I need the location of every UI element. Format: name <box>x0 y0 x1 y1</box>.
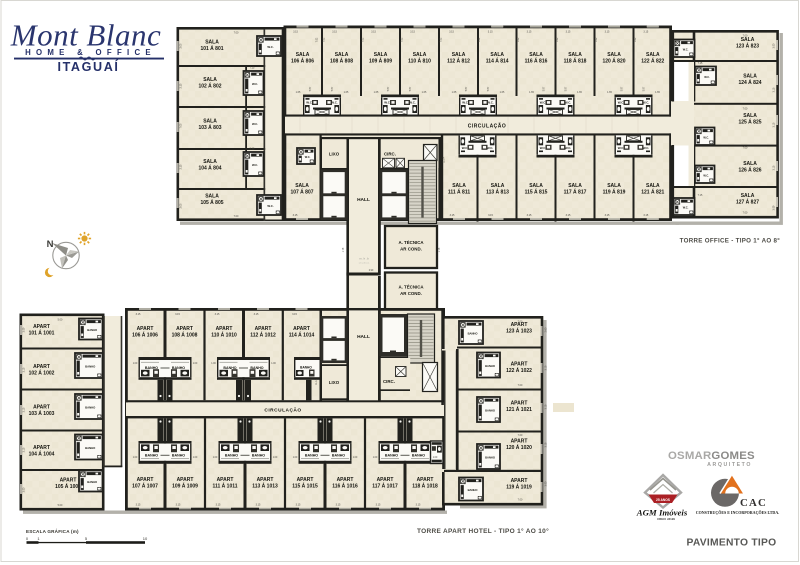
svg-text:5.87: 5.87 <box>566 86 568 91</box>
svg-text:1.65: 1.65 <box>607 91 612 94</box>
svg-text:1.65: 1.65 <box>374 91 379 94</box>
svg-text:CRECI J3129: CRECI J3129 <box>657 517 675 521</box>
svg-text:TORRE OFFICE - TIPO 1° AO 8°: TORRE OFFICE - TIPO 1° AO 8° <box>680 238 781 245</box>
svg-text:CIRC.: CIRC. <box>384 152 396 157</box>
svg-text:AR COND.: AR COND. <box>400 246 422 251</box>
svg-text:3.15: 3.15 <box>773 165 776 170</box>
svg-text:7.00: 7.00 <box>234 215 239 218</box>
svg-text:BANHO: BANHO <box>305 453 318 457</box>
svg-text:3.15: 3.15 <box>488 214 493 217</box>
svg-text:1.00: 1.00 <box>293 457 298 459</box>
svg-text:W.C.: W.C. <box>565 146 572 150</box>
svg-text:3.15: 3.15 <box>566 30 571 33</box>
svg-text:118 Á 818: 118 Á 818 <box>564 57 587 64</box>
svg-text:3.15: 3.15 <box>773 87 776 92</box>
svg-text:3.15: 3.15 <box>605 214 610 217</box>
svg-text:W.C.: W.C. <box>305 155 311 159</box>
svg-text:BANHO: BANHO <box>85 365 96 369</box>
svg-text:CIRCULAÇÃO: CIRCULAÇÃO <box>264 407 301 414</box>
svg-text:5.87: 5.87 <box>544 86 546 91</box>
svg-text:7.15: 7.15 <box>698 62 703 65</box>
svg-text:SALA: SALA <box>741 37 755 43</box>
svg-text:SALA: SALA <box>646 183 660 189</box>
svg-text:1.65: 1.65 <box>655 91 660 94</box>
svg-text:102 Á 802: 102 Á 802 <box>198 82 221 89</box>
svg-text:3.15: 3.15 <box>545 442 548 447</box>
svg-text:3.15: 3.15 <box>293 214 298 217</box>
svg-text:120 Á 1020: 120 Á 1020 <box>506 444 532 451</box>
svg-text:SALA: SALA <box>741 193 755 199</box>
svg-text:113 Á 1013: 113 Á 1013 <box>252 482 278 489</box>
svg-text:3.15: 3.15 <box>773 122 776 127</box>
svg-text:104 Á 804: 104 Á 804 <box>198 164 221 171</box>
svg-text:ITAGUAÍ: ITAGUAÍ <box>57 59 119 74</box>
svg-text:SALA: SALA <box>607 52 621 58</box>
svg-text:BANHO: BANHO <box>145 453 158 457</box>
svg-text:5.87: 5.87 <box>388 86 390 91</box>
svg-text:109 Á 809: 109 Á 809 <box>369 57 392 64</box>
svg-text:1.00: 1.00 <box>271 363 276 365</box>
svg-text:107 Á 1007: 107 Á 1007 <box>132 482 158 489</box>
svg-text:SALA: SALA <box>203 159 217 165</box>
svg-text:SALA: SALA <box>295 183 309 189</box>
svg-text:W.C.: W.C. <box>252 163 258 167</box>
svg-text:110 Á 810: 110 Á 810 <box>408 57 431 64</box>
svg-text:SALA: SALA <box>568 183 582 189</box>
svg-text:APART: APART <box>377 477 394 483</box>
svg-text:APART: APART <box>217 477 234 483</box>
svg-text:7.00: 7.00 <box>518 499 523 502</box>
svg-text:3.00: 3.00 <box>23 487 26 492</box>
svg-text:110 Á 1010: 110 Á 1010 <box>211 331 237 338</box>
svg-text:7.02: 7.02 <box>323 37 326 42</box>
svg-text:W.C.: W.C. <box>384 100 391 104</box>
svg-text:SALA: SALA <box>296 52 310 58</box>
svg-text:SALA: SALA <box>568 52 582 58</box>
svg-text:3.15: 3.15 <box>332 30 337 33</box>
svg-text:5.35: 5.35 <box>250 148 255 151</box>
svg-text:W.C.: W.C. <box>487 146 494 150</box>
svg-text:1.00: 1.00 <box>133 457 138 459</box>
svg-text:CIRC.: CIRC. <box>383 379 395 384</box>
svg-text:APART: APART <box>33 405 50 411</box>
svg-text:W.C.: W.C. <box>683 206 689 210</box>
svg-text:CONSTRUÇÕES E INCORPORAÇÕES LT: CONSTRUÇÕES E INCORPORAÇÕES LTDA. <box>696 510 779 515</box>
svg-text:1.65: 1.65 <box>500 91 505 94</box>
svg-text:APART: APART <box>511 478 528 484</box>
svg-text:7.00: 7.00 <box>743 147 748 150</box>
svg-text:116 Á 1016: 116 Á 1016 <box>332 482 358 489</box>
svg-text:APART: APART <box>137 326 154 332</box>
svg-text:119 Á 1019: 119 Á 1019 <box>506 483 532 490</box>
svg-text:3.09: 3.09 <box>23 327 26 332</box>
svg-text:APART: APART <box>216 326 233 332</box>
svg-text:5.87: 5.87 <box>488 86 490 91</box>
svg-text:BANHO: BANHO <box>385 453 398 457</box>
svg-text:s t u d i o s: s t u d i o s <box>359 262 370 265</box>
svg-text:107 Á 807: 107 Á 807 <box>290 188 313 195</box>
svg-text:124 Á 824: 124 Á 824 <box>738 79 761 86</box>
svg-text:3.15: 3.15 <box>256 504 261 507</box>
svg-text:25 ANOS: 25 ANOS <box>656 498 671 502</box>
svg-text:BANHO: BANHO <box>87 480 97 484</box>
svg-text:1.65: 1.65 <box>296 91 301 94</box>
svg-text:5.87: 5.87 <box>410 86 412 91</box>
svg-text:118 Á 1018: 118 Á 1018 <box>412 482 438 489</box>
svg-text:3.15: 3.15 <box>643 30 648 33</box>
svg-text:5.87: 5.87 <box>332 86 334 91</box>
svg-text:W.C.: W.C. <box>306 100 313 104</box>
svg-text:APART: APART <box>255 326 272 332</box>
svg-text:3.15: 3.15 <box>23 367 26 372</box>
svg-text:W.C.: W.C. <box>618 100 625 104</box>
svg-text:SALA: SALA <box>203 77 217 83</box>
svg-text:APART: APART <box>257 477 274 483</box>
svg-text:1.65: 1.65 <box>452 91 457 94</box>
svg-text:101 Á 801: 101 Á 801 <box>200 45 223 52</box>
svg-text:1.65: 1.65 <box>529 91 534 94</box>
svg-text:APART: APART <box>337 477 354 483</box>
svg-text:7.00: 7.00 <box>743 108 748 111</box>
svg-text:104 Á 1004: 104 Á 1004 <box>29 450 55 457</box>
svg-text:BANHO: BANHO <box>300 366 312 370</box>
svg-text:121 Á 821: 121 Á 821 <box>641 188 664 195</box>
svg-text:7.02: 7.02 <box>634 37 637 42</box>
svg-text:APART: APART <box>511 401 528 407</box>
svg-text:BANHO: BANHO <box>485 364 495 368</box>
svg-text:W.C.: W.C. <box>540 146 547 150</box>
svg-text:7.02: 7.02 <box>478 37 481 42</box>
svg-text:117 Á 817: 117 Á 817 <box>564 188 587 195</box>
svg-text:7.02: 7.02 <box>362 37 365 42</box>
svg-text:112 Á 1012: 112 Á 1012 <box>250 331 276 338</box>
svg-text:122 Á 1022: 122 Á 1022 <box>506 367 532 374</box>
svg-text:SALA: SALA <box>374 52 388 58</box>
svg-text:SALA: SALA <box>529 52 543 58</box>
svg-text:7.00: 7.00 <box>743 35 748 38</box>
svg-text:W.C.: W.C. <box>683 48 689 52</box>
svg-text:APART: APART <box>33 445 50 451</box>
svg-text:119 Á 819: 119 Á 819 <box>603 188 626 195</box>
svg-text:1.00: 1.00 <box>273 457 278 459</box>
svg-text:1.78: 1.78 <box>439 247 441 252</box>
svg-text:BANHO: BANHO <box>468 332 478 336</box>
svg-text:BANHO: BANHO <box>225 453 238 457</box>
svg-text:3.15: 3.15 <box>136 313 141 316</box>
svg-text:APART: APART <box>137 477 154 483</box>
svg-text:SALA: SALA <box>743 74 757 80</box>
svg-text:PAVIMENTO TIPO: PAVIMENTO TIPO <box>687 537 777 548</box>
svg-text:7.02: 7.02 <box>401 37 404 42</box>
svg-text:APART: APART <box>176 326 193 332</box>
svg-text:115 Á 815: 115 Á 815 <box>525 188 548 195</box>
svg-text:W.C.: W.C. <box>252 122 258 126</box>
svg-text:7.02: 7.02 <box>440 37 443 42</box>
svg-text:HALL: HALL <box>357 197 370 203</box>
svg-text:W.C.: W.C. <box>409 100 416 104</box>
svg-text:7.00: 7.00 <box>518 321 523 324</box>
svg-text:105 Á 805: 105 Á 805 <box>200 199 223 206</box>
svg-text:5.00: 5.00 <box>58 504 63 507</box>
svg-text:114 Á 814: 114 Á 814 <box>486 57 509 64</box>
svg-text:5.87: 5.87 <box>644 86 646 91</box>
svg-text:SALA: SALA <box>205 194 219 200</box>
svg-text:7.02: 7.02 <box>316 37 319 42</box>
svg-text:5.87: 5.87 <box>310 86 312 91</box>
svg-text:APART: APART <box>33 364 50 370</box>
svg-text:SALA: SALA <box>529 183 543 189</box>
svg-text:7.15: 7.15 <box>698 194 703 197</box>
svg-text:7.02: 7.02 <box>595 37 598 42</box>
svg-text:3.09: 3.09 <box>773 205 776 210</box>
svg-text:W.C.: W.C. <box>331 100 338 104</box>
svg-text:122 Á 822: 122 Á 822 <box>641 57 664 64</box>
svg-text:APART: APART <box>293 326 310 332</box>
svg-text:N: N <box>47 239 54 250</box>
svg-text:7.00: 7.00 <box>234 32 239 35</box>
svg-text:108 Á 1008: 108 Á 1008 <box>172 331 198 338</box>
svg-text:W.C.: W.C. <box>540 100 547 104</box>
svg-text:ESCALA GRÁFICA (m): ESCALA GRÁFICA (m) <box>26 528 79 534</box>
svg-text:OSMARGOMES: OSMARGOMES <box>668 450 755 462</box>
svg-text:108 Á 808: 108 Á 808 <box>330 57 353 64</box>
svg-text:APART: APART <box>417 477 434 483</box>
svg-text:A. TÉCNICA: A. TÉCNICA <box>398 240 424 245</box>
svg-text:AR COND.: AR COND. <box>400 291 422 296</box>
svg-text:123 Á 823: 123 Á 823 <box>736 42 759 49</box>
svg-text:W.C.: W.C. <box>643 146 650 150</box>
svg-text:SALA: SALA <box>743 161 757 167</box>
svg-text:7.00: 7.00 <box>743 212 748 215</box>
svg-text:BANHO: BANHO <box>485 409 495 413</box>
svg-text:1.00: 1.00 <box>353 457 358 459</box>
svg-text:W.C.: W.C. <box>703 135 709 139</box>
svg-text:BANHO: BANHO <box>172 453 185 457</box>
svg-text:7.00: 7.00 <box>180 123 183 128</box>
svg-text:1.00: 1.00 <box>213 457 218 459</box>
svg-text:BANHO: BANHO <box>87 328 97 332</box>
svg-text:3.15: 3.15 <box>176 504 181 507</box>
svg-text:SALA: SALA <box>203 119 217 125</box>
svg-text:7.00: 7.00 <box>518 384 523 387</box>
svg-text:10: 10 <box>143 536 148 541</box>
svg-text:109 Á 1009: 109 Á 1009 <box>172 482 198 489</box>
svg-text:103 Á 803: 103 Á 803 <box>198 124 221 131</box>
svg-text:1.65: 1.65 <box>344 91 349 94</box>
svg-text:1.65: 1.65 <box>422 91 427 94</box>
svg-text:SALA: SALA <box>743 113 757 119</box>
svg-text:5.87: 5.87 <box>622 86 624 91</box>
svg-text:3.15: 3.15 <box>292 313 297 316</box>
svg-text:7.00: 7.00 <box>518 434 523 437</box>
svg-text:LIXO: LIXO <box>329 380 340 385</box>
svg-text:7.15: 7.15 <box>250 67 255 70</box>
svg-text:3.15: 3.15 <box>180 83 183 88</box>
svg-text:3.15: 3.15 <box>180 164 183 169</box>
svg-text:BANHO: BANHO <box>468 488 478 492</box>
svg-text:W.C.: W.C. <box>565 100 572 104</box>
svg-text:3.15: 3.15 <box>336 504 341 507</box>
svg-text:7.02: 7.02 <box>517 37 520 42</box>
svg-text:3.15: 3.15 <box>605 30 610 33</box>
svg-text:BANHO: BANHO <box>85 446 96 450</box>
svg-text:5.00: 5.00 <box>58 319 63 322</box>
svg-text:113 Á 813: 113 Á 813 <box>486 188 509 195</box>
svg-text:BANHO: BANHO <box>412 453 425 457</box>
svg-text:7.02: 7.02 <box>556 37 559 42</box>
svg-text:3.00: 3.00 <box>180 203 183 208</box>
svg-text:BANHO: BANHO <box>485 456 495 460</box>
svg-text:114 Á 1014: 114 Á 1014 <box>289 331 315 338</box>
svg-text:BANHO: BANHO <box>332 453 345 457</box>
svg-text:SALA: SALA <box>205 40 219 46</box>
svg-text:3.15: 3.15 <box>488 30 493 33</box>
svg-text:111 Á 1011: 111 Á 1011 <box>212 482 237 489</box>
svg-text:W.C.: W.C. <box>462 146 469 150</box>
svg-text:3.15: 3.15 <box>450 214 455 217</box>
svg-text:1.65: 1.65 <box>577 91 582 94</box>
svg-text:112 Á 812: 112 Á 812 <box>447 57 470 64</box>
svg-text:SALA: SALA <box>646 52 660 58</box>
svg-text:W.C.: W.C. <box>618 146 625 150</box>
svg-text:127 Á 827: 127 Á 827 <box>736 198 759 205</box>
svg-text:3.15: 3.15 <box>23 407 26 412</box>
svg-text:W.C.: W.C. <box>462 100 469 104</box>
svg-text:105 Á 1005: 105 Á 1005 <box>55 483 81 490</box>
svg-text:2.60: 2.60 <box>545 327 548 332</box>
svg-text:SALA: SALA <box>452 52 466 58</box>
svg-text:11.14: 11.14 <box>443 156 446 162</box>
svg-text:1.00: 1.00 <box>433 457 438 459</box>
svg-text:2.90: 2.90 <box>369 270 374 272</box>
svg-text:3.15: 3.15 <box>449 30 454 33</box>
svg-text:125 Á 825: 125 Á 825 <box>738 118 761 125</box>
svg-text:APART: APART <box>511 362 528 368</box>
svg-text:APART: APART <box>177 477 194 483</box>
svg-text:BANHO: BANHO <box>85 406 96 410</box>
svg-text:A. TÉCNICA: A. TÉCNICA <box>398 285 424 290</box>
svg-text:1.00: 1.00 <box>211 363 216 365</box>
svg-text:SALA: SALA <box>335 52 349 58</box>
svg-text:120 Á 820: 120 Á 820 <box>602 57 625 64</box>
svg-text:W.C.: W.C. <box>703 173 709 177</box>
svg-text:3.15: 3.15 <box>296 504 301 507</box>
svg-text:3.15: 3.15 <box>545 365 548 370</box>
svg-text:1.00: 1.00 <box>373 457 378 459</box>
svg-text:SALA: SALA <box>490 52 504 58</box>
svg-text:3.15: 3.15 <box>23 447 26 452</box>
svg-text:1.00: 1.00 <box>133 363 138 365</box>
svg-text:123 Á 1023: 123 Á 1023 <box>506 327 532 334</box>
svg-text:3.15: 3.15 <box>254 313 259 316</box>
svg-text:3.15: 3.15 <box>175 313 180 316</box>
svg-text:3.00: 3.00 <box>545 481 548 486</box>
svg-text:3.15: 3.15 <box>216 504 221 507</box>
svg-text:115 Á 1015: 115 Á 1015 <box>292 482 318 489</box>
svg-text:3.15: 3.15 <box>215 313 220 316</box>
svg-text:APART: APART <box>511 439 528 445</box>
svg-text:W.C.: W.C. <box>252 82 258 86</box>
svg-text:W.C.: W.C. <box>643 100 650 104</box>
svg-text:CIRCULAÇÃO: CIRCULAÇÃO <box>468 123 507 130</box>
svg-text:106 Á 806: 106 Á 806 <box>291 57 314 64</box>
svg-text:1.00: 1.00 <box>193 457 198 459</box>
svg-text:SALA: SALA <box>413 52 427 58</box>
svg-text:W.C.: W.C. <box>487 100 494 104</box>
svg-text:3.15: 3.15 <box>527 30 532 33</box>
svg-text:W.C.: W.C. <box>267 204 273 208</box>
svg-text:BANHO: BANHO <box>252 453 265 457</box>
svg-text:116 Á 816: 116 Á 816 <box>525 57 548 64</box>
svg-text:APART: APART <box>297 477 314 483</box>
svg-text:HALL: HALL <box>357 334 370 340</box>
svg-text:3.15: 3.15 <box>527 214 532 217</box>
svg-text:103 Á 1003: 103 Á 1003 <box>29 410 55 417</box>
svg-text:3.00: 3.00 <box>773 43 776 48</box>
svg-text:5.87: 5.87 <box>466 86 468 91</box>
svg-text:CAC: CAC <box>740 497 767 509</box>
svg-text:SALA: SALA <box>491 183 505 189</box>
svg-text:106 Á 1006: 106 Á 1006 <box>132 331 158 338</box>
svg-text:111 Á 811: 111 Á 811 <box>448 188 470 195</box>
svg-text:102 Á 1002: 102 Á 1002 <box>29 369 55 376</box>
svg-text:LIXO: LIXO <box>329 152 340 157</box>
svg-text:3.15: 3.15 <box>566 214 571 217</box>
svg-text:101 Á 1001: 101 Á 1001 <box>29 329 55 336</box>
svg-text:3.15: 3.15 <box>643 214 648 217</box>
svg-text:117 Á 1017: 117 Á 1017 <box>372 482 398 489</box>
svg-text:121 Á 1021: 121 Á 1021 <box>506 406 532 413</box>
svg-text:11.14: 11.14 <box>315 378 318 384</box>
svg-text:3.15: 3.15 <box>136 504 141 507</box>
svg-text:W.C.: W.C. <box>267 45 273 49</box>
svg-text:HOME & OFFICE: HOME & OFFICE <box>25 48 156 57</box>
svg-text:TORRE APART HOTEL - TIPO 1° AO: TORRE APART HOTEL - TIPO 1° AO 10° <box>417 527 549 535</box>
svg-text:126 Á 826: 126 Á 826 <box>738 166 761 173</box>
svg-text:m . h . b: m . h . b <box>359 257 369 261</box>
svg-text:3.15: 3.15 <box>376 504 381 507</box>
svg-text:3.15: 3.15 <box>416 504 421 507</box>
svg-text:ARQUITETO: ARQUITETO <box>707 462 752 468</box>
svg-text:3.15: 3.15 <box>293 30 298 33</box>
svg-text:APART: APART <box>33 324 50 330</box>
svg-text:SALA: SALA <box>607 183 621 189</box>
svg-text:W.C.: W.C. <box>704 75 710 79</box>
svg-text:1.00: 1.00 <box>193 363 198 365</box>
svg-text:3.15: 3.15 <box>371 30 376 33</box>
svg-text:3.15: 3.15 <box>410 30 415 33</box>
svg-text:1.78: 1.78 <box>343 247 345 252</box>
svg-text:SALA: SALA <box>452 183 466 189</box>
svg-text:APART: APART <box>60 478 77 484</box>
svg-text:3.00: 3.00 <box>180 43 183 48</box>
svg-text:3.15: 3.15 <box>545 404 548 409</box>
